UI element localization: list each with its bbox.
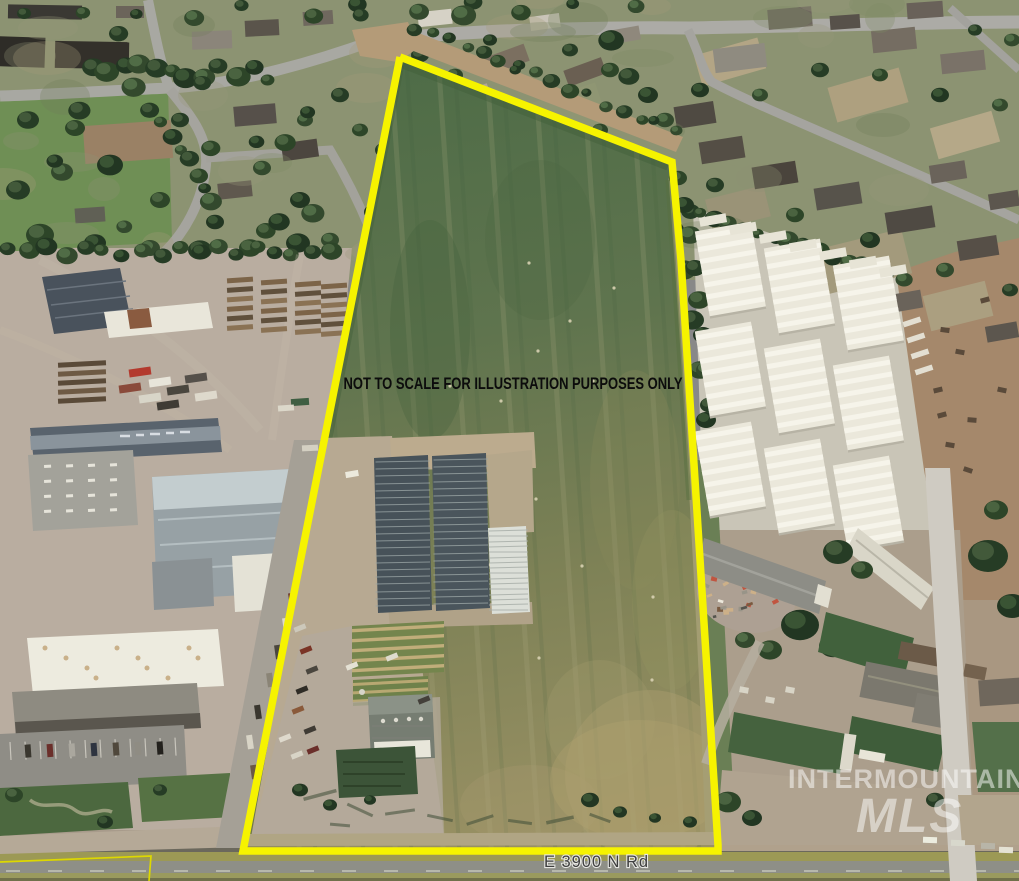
- svg-text:E 3900 N Rd: E 3900 N Rd: [544, 853, 648, 871]
- svg-text:NOT TO SCALE FOR ILLUSTRATION: NOT TO SCALE FOR ILLUSTRATION PURPOSES O…: [344, 374, 683, 393]
- svg-text:MLS: MLS: [856, 790, 963, 843]
